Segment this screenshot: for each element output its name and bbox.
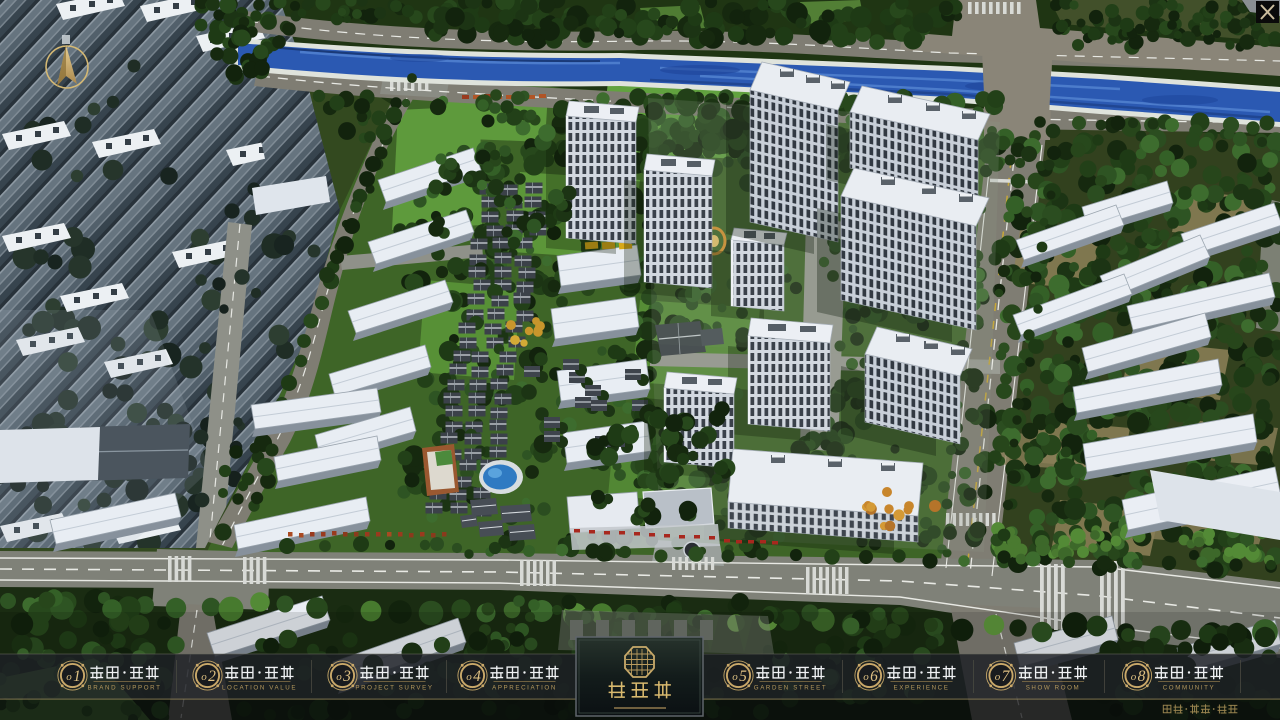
svg-text:PROJECT SURVEY: PROJECT SURVEY bbox=[355, 685, 433, 692]
svg-text:8: 8 bbox=[1138, 668, 1146, 685]
svg-text:EXPERIENCE: EXPERIENCE bbox=[894, 685, 950, 692]
svg-text:o: o bbox=[336, 671, 342, 683]
svg-text:o: o bbox=[201, 671, 207, 683]
svg-text:6: 6 bbox=[870, 668, 878, 685]
svg-text:GARDEN STREET: GARDEN STREET bbox=[754, 685, 827, 692]
svg-text:o: o bbox=[732, 671, 738, 683]
svg-text:o: o bbox=[995, 671, 1001, 683]
svg-text:2: 2 bbox=[208, 668, 216, 685]
svg-text:LOCATION VALUE: LOCATION VALUE bbox=[222, 685, 297, 692]
svg-text:o: o bbox=[863, 671, 869, 683]
svg-text:1: 1 bbox=[73, 668, 81, 685]
svg-text:o: o bbox=[66, 671, 72, 683]
svg-text:SHOW ROOM: SHOW ROOM bbox=[1026, 685, 1081, 692]
svg-text:3: 3 bbox=[342, 668, 351, 685]
svg-text:COMMUNITY: COMMUNITY bbox=[1163, 685, 1216, 692]
svg-text:BRAND SUPPORT: BRAND SUPPORT bbox=[88, 685, 162, 692]
svg-text:4: 4 bbox=[473, 668, 481, 685]
svg-text:o: o bbox=[1131, 671, 1137, 683]
svg-text:o: o bbox=[466, 671, 472, 683]
svg-text:7: 7 bbox=[1002, 668, 1011, 685]
svg-text:5: 5 bbox=[739, 668, 747, 685]
svg-text:APPRECIATION: APPRECIATION bbox=[492, 685, 557, 692]
